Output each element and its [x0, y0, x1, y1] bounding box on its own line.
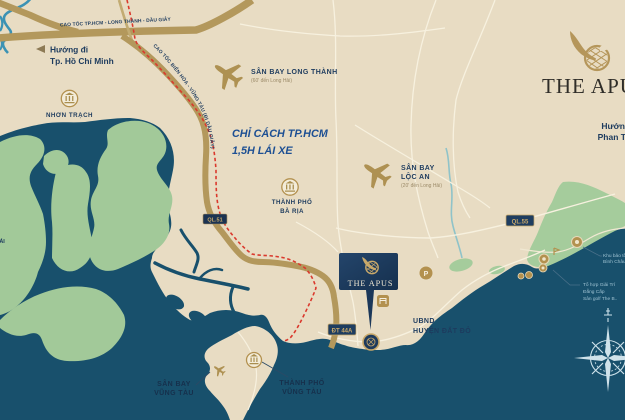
svg-text:P: P [424, 271, 429, 278]
svg-text:THE APUS: THE APUS [348, 279, 394, 288]
svg-text:Hướng đi: Hướng đi [50, 45, 88, 55]
svg-text:SÂN BAY LONG THÀNH: SÂN BAY LONG THÀNH [251, 67, 338, 76]
svg-text:VŨNG TÀU: VŨNG TÀU [154, 388, 194, 397]
svg-text:CHỈ CÁCH TP.HCM: CHỈ CÁCH TP.HCM [232, 127, 329, 140]
svg-text:ĐT 44A: ĐT 44A [332, 329, 353, 335]
svg-text:VŨNG TÀU: VŨNG TÀU [282, 387, 322, 396]
svg-text:Phan Thiết ▶: Phan Thiết ▶ [598, 132, 625, 142]
svg-text:Bình Châu..: Bình Châu.. [603, 259, 625, 265]
svg-text:SÂN BAY: SÂN BAY [157, 379, 191, 388]
svg-text:SÂN BAY: SÂN BAY [401, 163, 435, 172]
svg-text:THÀNH PHỐ: THÀNH PHỐ [272, 199, 312, 206]
svg-text:NHƠN TRẠCH: NHƠN TRẠCH [46, 112, 93, 119]
svg-text:Sân golf The B..: Sân golf The B.. [583, 296, 617, 302]
svg-text:Đẳng Cấp: Đẳng Cấp [583, 288, 605, 295]
svg-text:LỘC AN: LỘC AN [401, 172, 430, 181]
svg-text:(60' đến Long Hải): (60' đến Long Hải) [251, 78, 292, 84]
svg-text:(20' đến Long Hải): (20' đến Long Hải) [401, 183, 442, 189]
svg-text:THE APUS: THE APUS [542, 74, 625, 98]
svg-text:UBND: UBND [413, 318, 435, 325]
svg-text:1,5H LÁI XE: 1,5H LÁI XE [232, 144, 293, 157]
svg-text:Tp. Hồ Chí Minh: Tp. Hồ Chí Minh [50, 56, 114, 66]
svg-text:BÀ RỊA: BÀ RỊA [280, 208, 304, 215]
svg-text:Hướng đi: Hướng đi [601, 121, 625, 131]
svg-text:THÁI: THÁI [0, 238, 5, 245]
svg-text:Tổ hợp Giải Trí: Tổ hợp Giải Trí [583, 281, 616, 288]
svg-text:QL.51: QL.51 [207, 218, 222, 224]
svg-text:QL.55: QL.55 [512, 220, 529, 226]
svg-text:Khu bảo tồn: Khu bảo tồn [603, 253, 625, 259]
